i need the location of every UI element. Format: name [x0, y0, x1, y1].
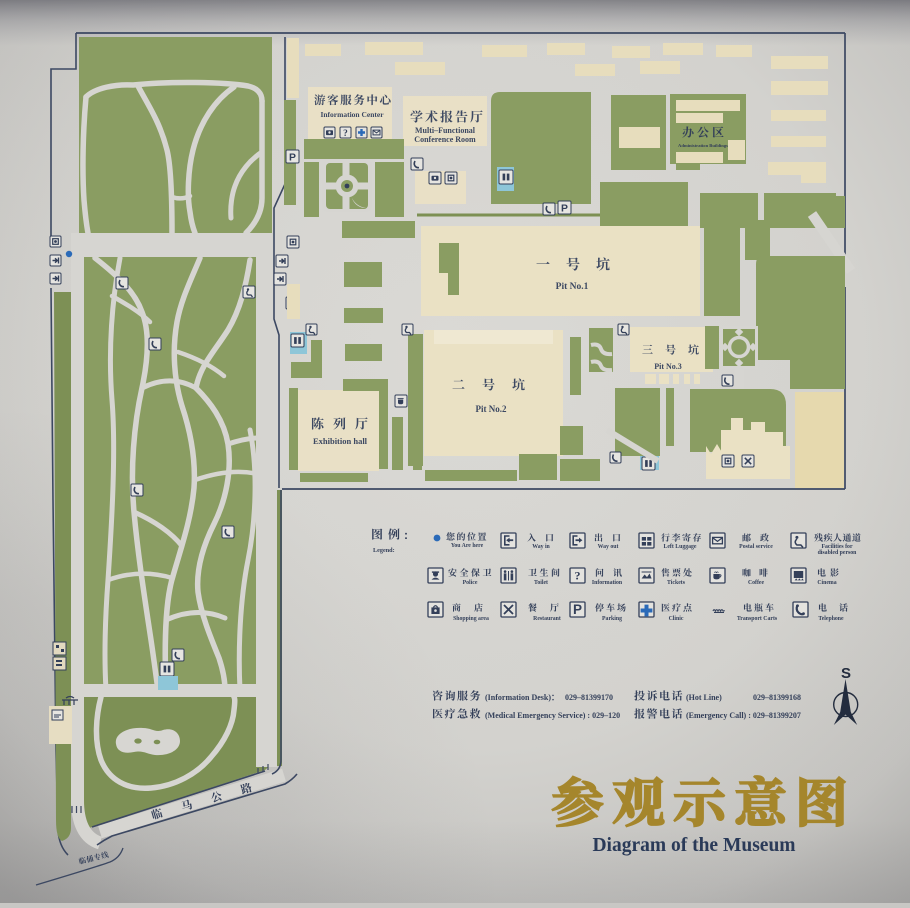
svg-text:Cinema: Cinema	[817, 580, 836, 586]
svg-text:Transport Carts: Transport Carts	[737, 616, 778, 622]
svg-text:Pit No.1: Pit No.1	[556, 282, 589, 292]
svg-text::: :	[404, 528, 408, 542]
svg-text:Clinic: Clinic	[669, 616, 684, 622]
svg-text:Shopping area: Shopping area	[453, 616, 489, 622]
svg-text:Restaurant: Restaurant	[533, 616, 561, 622]
svg-text:P: P	[561, 204, 568, 215]
svg-text:Exhibition hall: Exhibition hall	[313, 436, 368, 446]
svg-text:(Medical Emergency Service) :: (Medical Emergency Service) : 029–120	[485, 711, 620, 720]
svg-text:Information: Information	[592, 580, 623, 586]
svg-text:Police: Police	[463, 580, 478, 586]
svg-text:Telephone: Telephone	[818, 616, 844, 622]
svg-text:disabled person: disabled person	[818, 550, 858, 556]
svg-text:?: ?	[343, 129, 348, 139]
svg-text:Postal service: Postal service	[739, 544, 773, 550]
svg-text:P: P	[289, 153, 296, 164]
svg-text:Diagram of the Museum: Diagram of the Museum	[592, 835, 795, 856]
svg-text:Way in: Way in	[532, 544, 550, 550]
svg-text:029–81399168: 029–81399168	[753, 693, 801, 702]
svg-text:P: P	[573, 602, 582, 617]
svg-text:You Are here: You Are here	[451, 543, 484, 549]
svg-text:Way out: Way out	[598, 544, 619, 550]
svg-text:Coffee: Coffee	[748, 580, 765, 586]
svg-text:Information Center: Information Center	[320, 110, 384, 119]
svg-text:Administration Buildings: Administration Buildings	[678, 143, 728, 148]
svg-text:029–81399170: 029–81399170	[565, 693, 613, 702]
svg-text:Tickets: Tickets	[667, 580, 686, 586]
svg-text:Toilet: Toilet	[534, 580, 548, 586]
svg-text:(Information Desk)：: (Information Desk)：	[485, 693, 559, 702]
svg-text:Pit No.3: Pit No.3	[654, 362, 682, 371]
svg-text:Legend:: Legend:	[373, 547, 395, 554]
svg-text:Left Luggage: Left Luggage	[663, 544, 696, 550]
svg-text:?: ?	[575, 569, 581, 583]
svg-text:(Hot Line): (Hot Line)	[686, 693, 722, 702]
svg-text:Multi–Functional: Multi–Functional	[415, 126, 476, 135]
svg-text:(Emergency Call) : 029–813992: (Emergency Call) : 029–81399207	[686, 711, 801, 720]
svg-text:S: S	[841, 665, 851, 682]
svg-text:Pit No.2: Pit No.2	[476, 404, 507, 414]
svg-text:Parking: Parking	[602, 616, 622, 622]
svg-text:Conference Room: Conference Room	[414, 135, 476, 144]
